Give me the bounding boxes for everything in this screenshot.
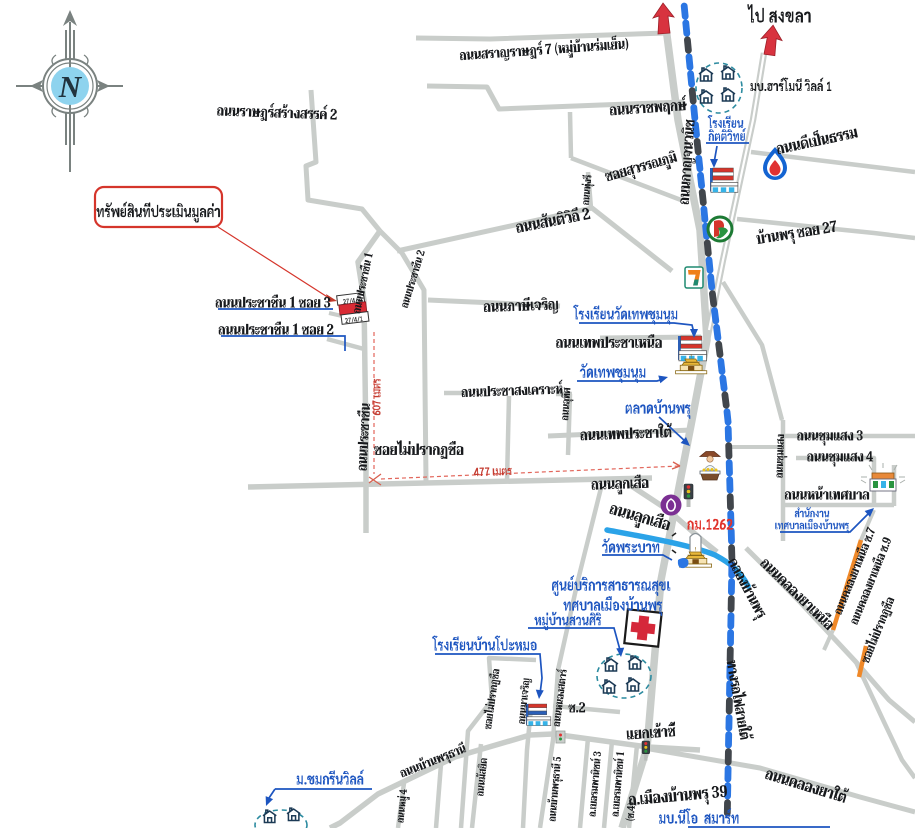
svg-text:N: N bbox=[58, 69, 83, 104]
